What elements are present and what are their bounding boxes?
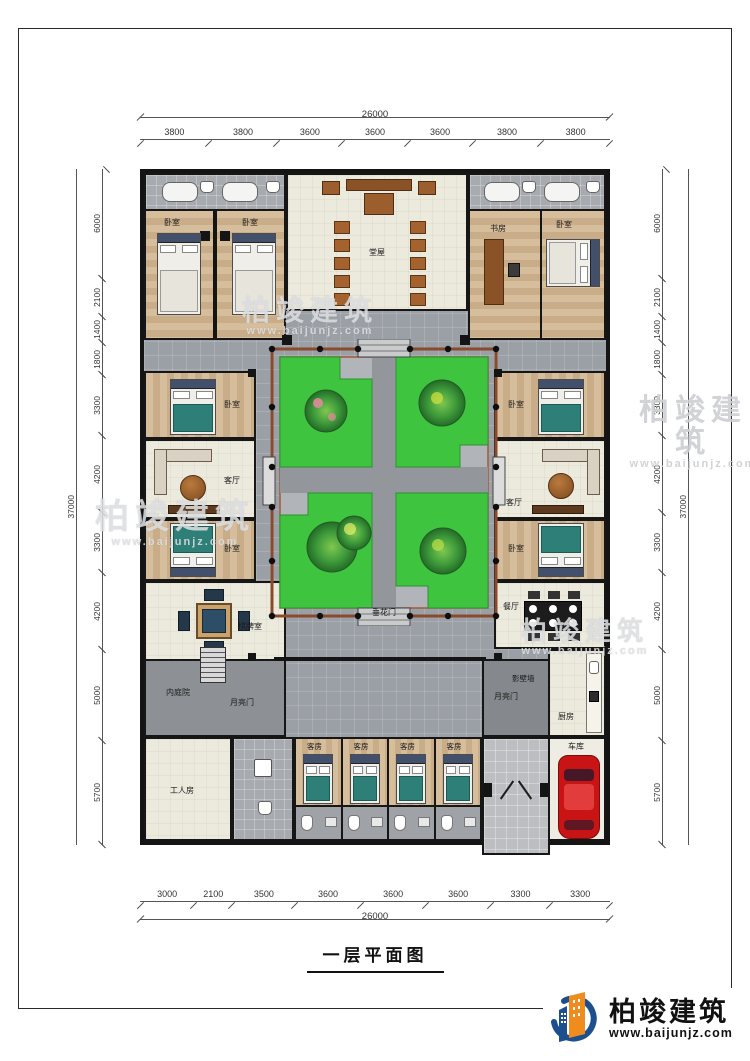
hall-room: 堂屋	[286, 173, 468, 311]
bed	[303, 754, 333, 804]
guest-room: 客房	[387, 739, 434, 839]
dim-segment: 4200	[646, 573, 662, 650]
column-base	[460, 335, 470, 345]
room-label: 客厅	[506, 499, 522, 507]
gate-post	[540, 783, 548, 797]
dim-segment: 3800	[473, 124, 542, 139]
column-base	[282, 335, 292, 345]
dim-bottom-segments: 30002100350036003600360033003300	[140, 886, 610, 902]
chair	[334, 275, 350, 288]
room-label: 卧室	[242, 219, 258, 227]
study-room: 书房	[468, 209, 542, 340]
central-courtyard	[262, 339, 506, 626]
plate	[569, 619, 577, 627]
bed	[396, 754, 426, 804]
dim-segment: 4200	[86, 573, 102, 650]
wall	[274, 657, 486, 661]
dim-left-segments: 6000210014001800330042003300420050005700	[86, 169, 103, 845]
logo-icon	[547, 990, 601, 1048]
dim-segment: 3600	[295, 886, 360, 901]
dim-segment: 3800	[140, 124, 209, 139]
tv-cabinet	[532, 505, 584, 514]
guest-room: 客房	[296, 739, 341, 839]
dim-segment: 3600	[408, 124, 473, 139]
plate	[529, 619, 537, 627]
dim-segment: 3800	[541, 124, 610, 139]
bathtub	[544, 182, 580, 202]
room-label: 内庭院	[166, 689, 190, 697]
chair	[334, 257, 350, 270]
bed	[232, 233, 276, 315]
chair	[410, 275, 426, 288]
dim-segment: 3600	[361, 886, 426, 901]
chair	[568, 633, 580, 641]
room-label: 书房	[490, 225, 506, 233]
bathroom-topleft	[144, 173, 286, 211]
bed	[350, 754, 380, 804]
worker-room: 工人房	[144, 737, 232, 841]
car	[558, 755, 600, 839]
plate	[569, 605, 577, 613]
gate-post	[484, 783, 492, 797]
desk	[484, 239, 504, 305]
dim-segment: 3500	[232, 886, 295, 901]
dim-top-total: 26000	[140, 103, 610, 118]
column-base	[494, 369, 502, 377]
room-label: 卧室	[224, 545, 240, 553]
chair	[334, 293, 350, 306]
chair	[410, 221, 426, 234]
toilet	[266, 181, 280, 193]
dim-segment: 3300	[646, 375, 662, 435]
bedroom-right-upper: 卧室	[494, 371, 606, 439]
toilet	[200, 181, 214, 193]
side-table	[418, 181, 436, 195]
screen-wall-passage: 影壁墙 月亮门	[482, 659, 550, 737]
dim-segment: 1400	[86, 317, 102, 343]
bedroom-left-lower: 卧室	[144, 519, 256, 581]
room-label: 车库	[568, 743, 584, 751]
gate-label: 月亮门	[494, 693, 518, 701]
bed	[170, 379, 216, 435]
room-label: 客房	[307, 743, 322, 751]
room-label: 厨房	[558, 713, 574, 721]
dim-segment: 6000	[86, 169, 102, 279]
dim-segment: 3300	[86, 513, 102, 573]
dim-segment: 4200	[86, 436, 102, 513]
chair	[568, 591, 580, 599]
toilet	[586, 181, 600, 193]
living-room-right: 客厅	[494, 439, 606, 519]
room-label: 堂屋	[288, 249, 466, 257]
dim-segment: 2100	[86, 279, 102, 317]
bedroom-right-lower: 卧室	[494, 519, 606, 581]
guest-room: 客房	[341, 739, 388, 839]
dim-right-segments: 6000210014001800330042003300420050005700	[646, 169, 663, 845]
bathtub	[222, 182, 258, 202]
chair	[548, 591, 560, 599]
side-table	[322, 181, 340, 195]
chair	[204, 589, 224, 601]
chair	[334, 221, 350, 234]
dim-right-total: 37000	[674, 169, 689, 845]
bedroom-topright: 卧室	[540, 209, 606, 340]
toilet	[258, 801, 272, 815]
wall-label: 影壁墙	[512, 675, 535, 683]
column-base	[494, 653, 502, 661]
dim-segment: 5700	[86, 741, 102, 845]
dim-segment: 2100	[194, 886, 232, 901]
bed	[546, 239, 600, 287]
chair	[410, 257, 426, 270]
dim-segment: 5000	[86, 650, 102, 741]
chair	[178, 611, 190, 631]
room-label: 餐厅	[503, 603, 519, 611]
bed	[538, 523, 584, 577]
dim-segment: 1800	[646, 343, 662, 376]
guest-bathroom	[343, 805, 388, 839]
bed	[538, 379, 584, 435]
entrance-passage	[482, 737, 550, 855]
tea-table	[180, 475, 206, 501]
guest-bathroom	[389, 805, 434, 839]
dim-segment: 3300	[646, 513, 662, 573]
sofa	[587, 449, 600, 495]
dim-segment: 4200	[646, 436, 662, 513]
column-base	[248, 653, 256, 661]
bed	[443, 754, 473, 804]
nightstand	[200, 231, 210, 241]
dim-segment: 6000	[646, 169, 662, 279]
room-label: 卧室	[508, 401, 524, 409]
room-label: 卧室	[164, 219, 180, 227]
door-leaf	[500, 780, 514, 799]
room-label: 客房	[354, 743, 369, 751]
logo-brand: 柏竣建筑	[609, 998, 733, 1026]
room-label: 卧室	[224, 401, 240, 409]
bed	[170, 523, 216, 577]
guest-bathroom	[296, 805, 341, 839]
room-label: 客厅	[224, 477, 240, 485]
guest-rooms: 客房 客房 客房 客房	[294, 737, 482, 841]
chair	[528, 591, 540, 599]
kitchen: 厨房	[548, 649, 606, 737]
bed	[157, 233, 201, 315]
dim-segment: 2100	[646, 279, 662, 317]
chair	[528, 633, 540, 641]
sink	[589, 661, 599, 674]
dim-segment: 3600	[342, 124, 407, 139]
logo-text: 柏竣建筑 www.baijunjz.com	[609, 998, 733, 1040]
utility-corridor	[232, 737, 294, 841]
altar-table	[346, 179, 412, 191]
dim-segment: 3300	[550, 886, 610, 901]
dining-room: 餐厅	[494, 581, 606, 649]
room-label: 棋牌室	[238, 623, 262, 631]
courtyard-drawing	[262, 339, 506, 626]
plate	[529, 605, 537, 613]
room-label: 客房	[447, 743, 462, 751]
guest-bathroom	[436, 805, 481, 839]
dim-segment: 3000	[140, 886, 194, 901]
square-table	[364, 193, 394, 215]
bathtub	[162, 182, 198, 202]
chair	[410, 293, 426, 306]
room-label: 卧室	[508, 545, 524, 553]
nightstand	[220, 231, 230, 241]
bedrooms-topleft: 卧室 卧室	[144, 209, 286, 340]
door-leaf	[518, 780, 532, 799]
floor-plan: 卧室 卧室 堂屋	[140, 169, 610, 845]
dim-segment: 1800	[86, 343, 102, 376]
dim-segment: 5700	[646, 741, 662, 845]
sofa	[154, 449, 167, 495]
dim-left-total: 37000	[62, 169, 77, 845]
guest-room: 客房	[434, 739, 481, 839]
plate	[549, 619, 557, 627]
dim-segment: 1400	[646, 317, 662, 343]
brand-logo: 柏竣建筑 www.baijunjz.com	[543, 988, 737, 1050]
wall	[213, 211, 217, 338]
gate-label: 月亮门	[212, 699, 272, 707]
dim-segment: 5000	[646, 650, 662, 741]
gate-label: 垂花门	[349, 609, 419, 617]
stove	[589, 691, 599, 702]
dim-segment: 3600	[277, 124, 342, 139]
room-label: 客房	[400, 743, 415, 751]
room-label: 工人房	[170, 787, 194, 795]
bathtub	[484, 182, 520, 202]
bedroom-left-upper: 卧室	[144, 371, 256, 439]
dim-segment: 3600	[426, 886, 491, 901]
dim-segment: 3800	[209, 124, 278, 139]
dim-segment: 3300	[86, 375, 102, 435]
bathroom-topright	[468, 173, 606, 211]
chair	[548, 633, 560, 641]
sheet-title: 一层平面图	[0, 941, 750, 973]
room-label: 卧室	[556, 221, 572, 229]
dim-segment: 3300	[491, 886, 551, 901]
dim-bottom-total: 26000	[140, 905, 610, 920]
floor-plan-sheet: 26000 3800380036003600360038003800 30002…	[0, 0, 750, 1061]
mahjong-table-top	[202, 609, 226, 633]
logo-url: www.baijunjz.com	[609, 1026, 733, 1040]
tv-cabinet	[168, 505, 220, 514]
dim-top-segments: 3800380036003600360038003800	[140, 124, 610, 140]
garage: 车库	[548, 737, 606, 841]
column-base	[248, 369, 256, 377]
tea-table	[548, 473, 574, 499]
toilet	[522, 181, 536, 193]
chair	[508, 263, 520, 277]
staircase	[200, 647, 226, 683]
plate	[549, 605, 557, 613]
washer	[254, 759, 272, 777]
living-room-left: 客厅	[144, 439, 256, 519]
